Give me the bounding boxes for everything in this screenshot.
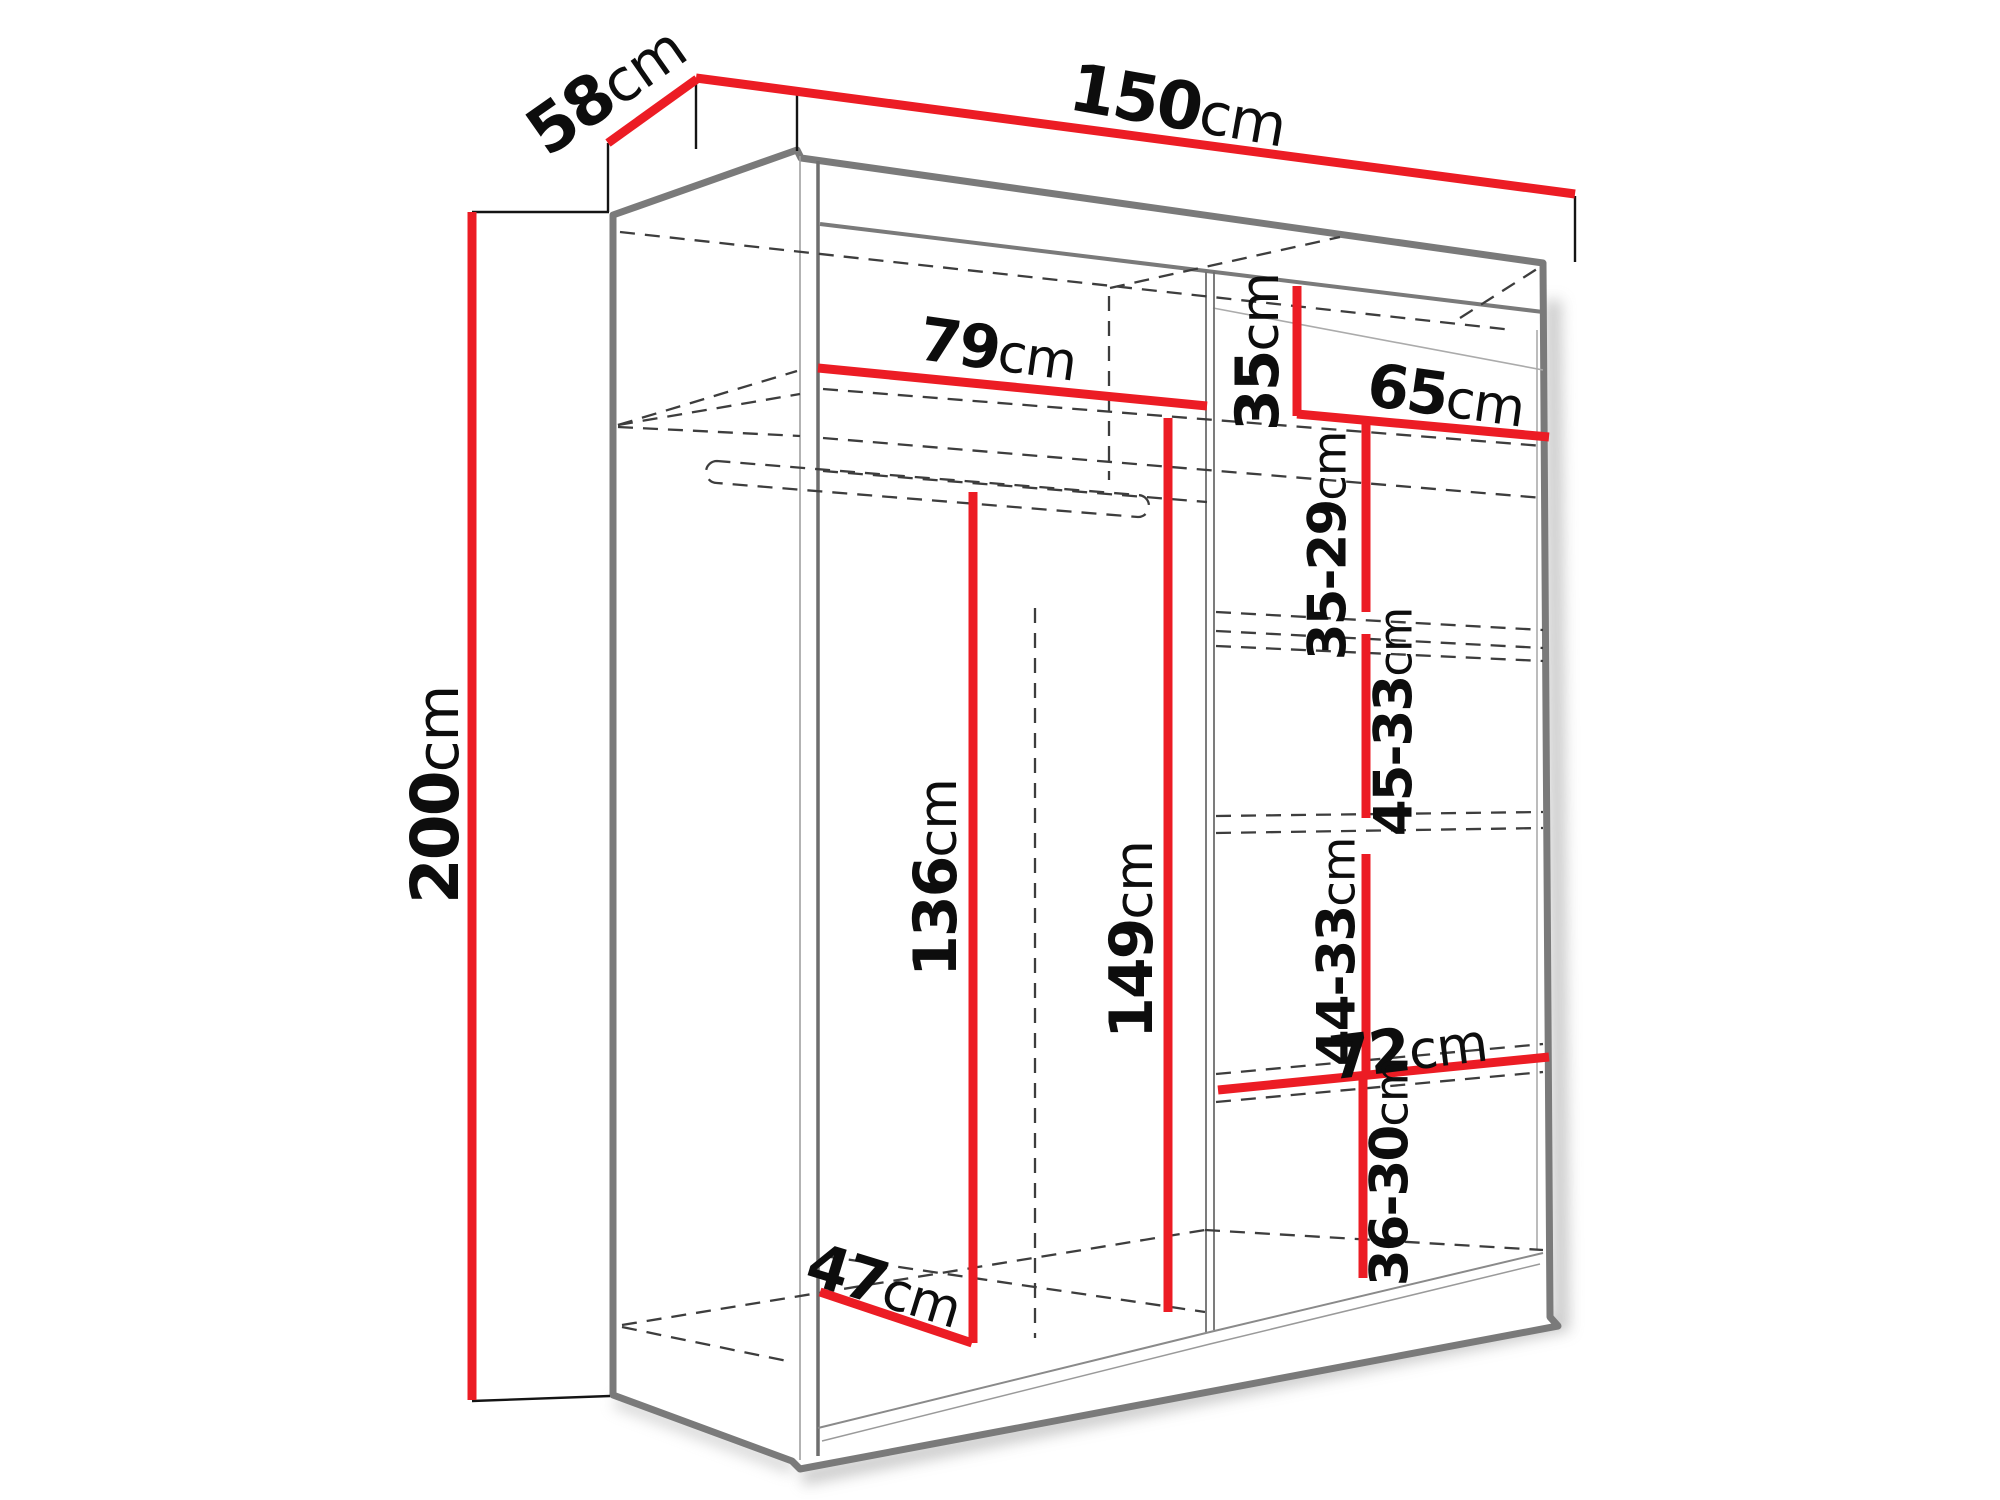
dim-unit-149: cm [1104,841,1165,919]
dim-unit-44-33: cm [1312,838,1366,907]
dim-unit-35-29: cm [1303,432,1357,501]
wardrobe-line-drawing [0,0,2000,1500]
dim-unit-200: cm [404,686,472,773]
dim-value-149: 149 [1097,920,1167,1039]
dim-label-45-33cm: 45-33cm [1368,608,1421,837]
dim-value-35: 35 [1223,351,1293,431]
dim-unit-79: cm [994,322,1080,393]
dim-unit-36-30: cm [1365,1058,1419,1127]
dim-value-79: 79 [915,304,1003,384]
dim-label-36-30cm: 36-30cm [1364,1058,1417,1287]
dim-unit-35: cm [1230,273,1291,351]
dim-label-136cm: 136cm [906,779,966,977]
dim-value-36-30: 36-30 [1360,1127,1421,1287]
dim-value-200: 200 [397,772,474,904]
dim-label-149cm: 149cm [1102,841,1162,1039]
wardrobe-dimension-diagram: 58cm 150cm 200cm 79cm 35cm 65cm 35-29cm … [0,0,2000,1500]
dim-label-200cm: 200cm [403,686,469,904]
dim-unit-65: cm [1442,368,1528,439]
dim-unit-136: cm [908,779,969,857]
dim-value-65: 65 [1363,350,1451,430]
dim-value-35-29: 35-29 [1298,501,1359,661]
dim-label-35-29cm: 35-29cm [1302,432,1355,661]
dim-label-35cm: 35cm [1228,273,1288,431]
dim-unit-150: cm [1194,78,1291,160]
dim-value-136: 136 [901,858,971,977]
dim-unit-45-33: cm [1369,608,1423,677]
dim-value-45-33: 45-33 [1364,677,1425,837]
extension-line-bottom-left [472,1396,610,1401]
